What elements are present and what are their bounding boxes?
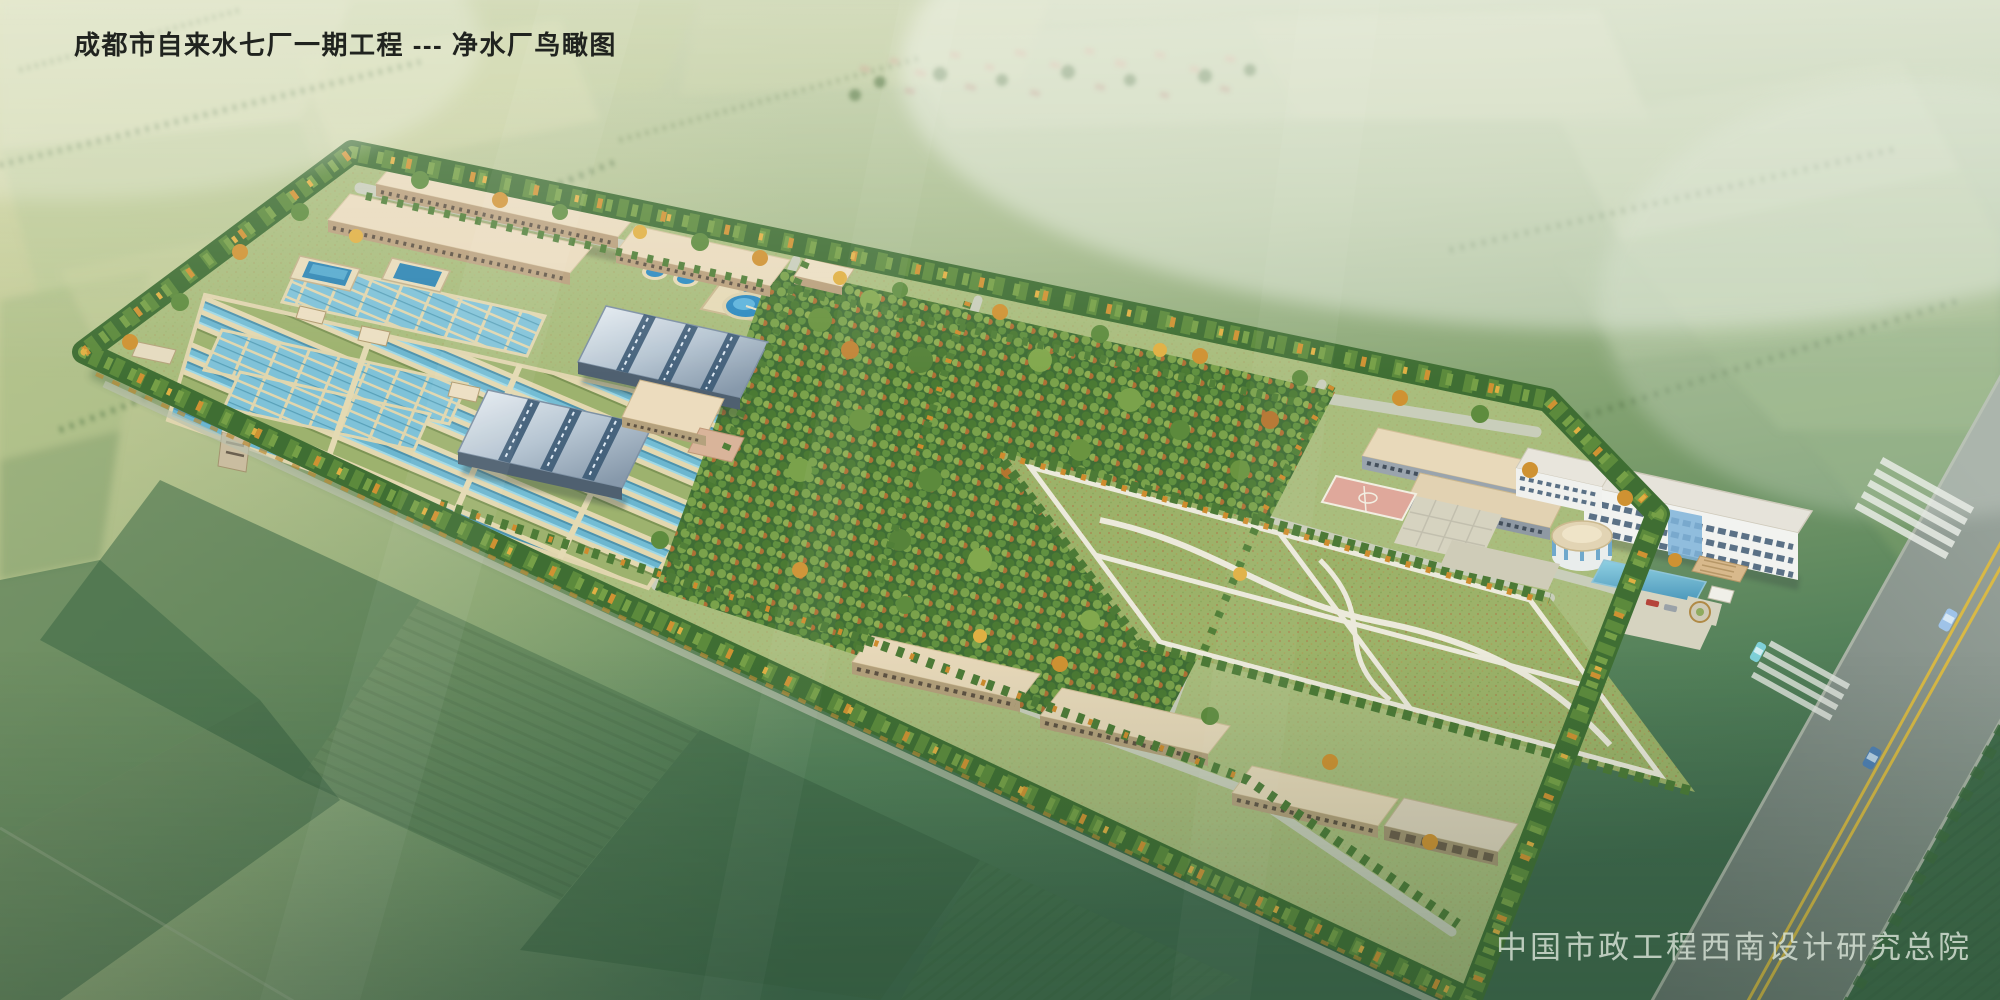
- page-title: 成都市自来水七厂一期工程 --- 净水厂鸟瞰图: [74, 30, 617, 60]
- design-institute-credit: 中国市政工程西南设计研究总院: [1496, 930, 1972, 965]
- water-plant-birdseye-rendering: 成都市自来水七厂一期工程 --- 净水厂鸟瞰图 中国市政工程西南设计研究总院: [0, 0, 2000, 1000]
- atmosphere: [0, 0, 2000, 1000]
- aerial-rendering-stage: 成都市自来水七厂一期工程 --- 净水厂鸟瞰图 中国市政工程西南设计研究总院: [0, 0, 2000, 1000]
